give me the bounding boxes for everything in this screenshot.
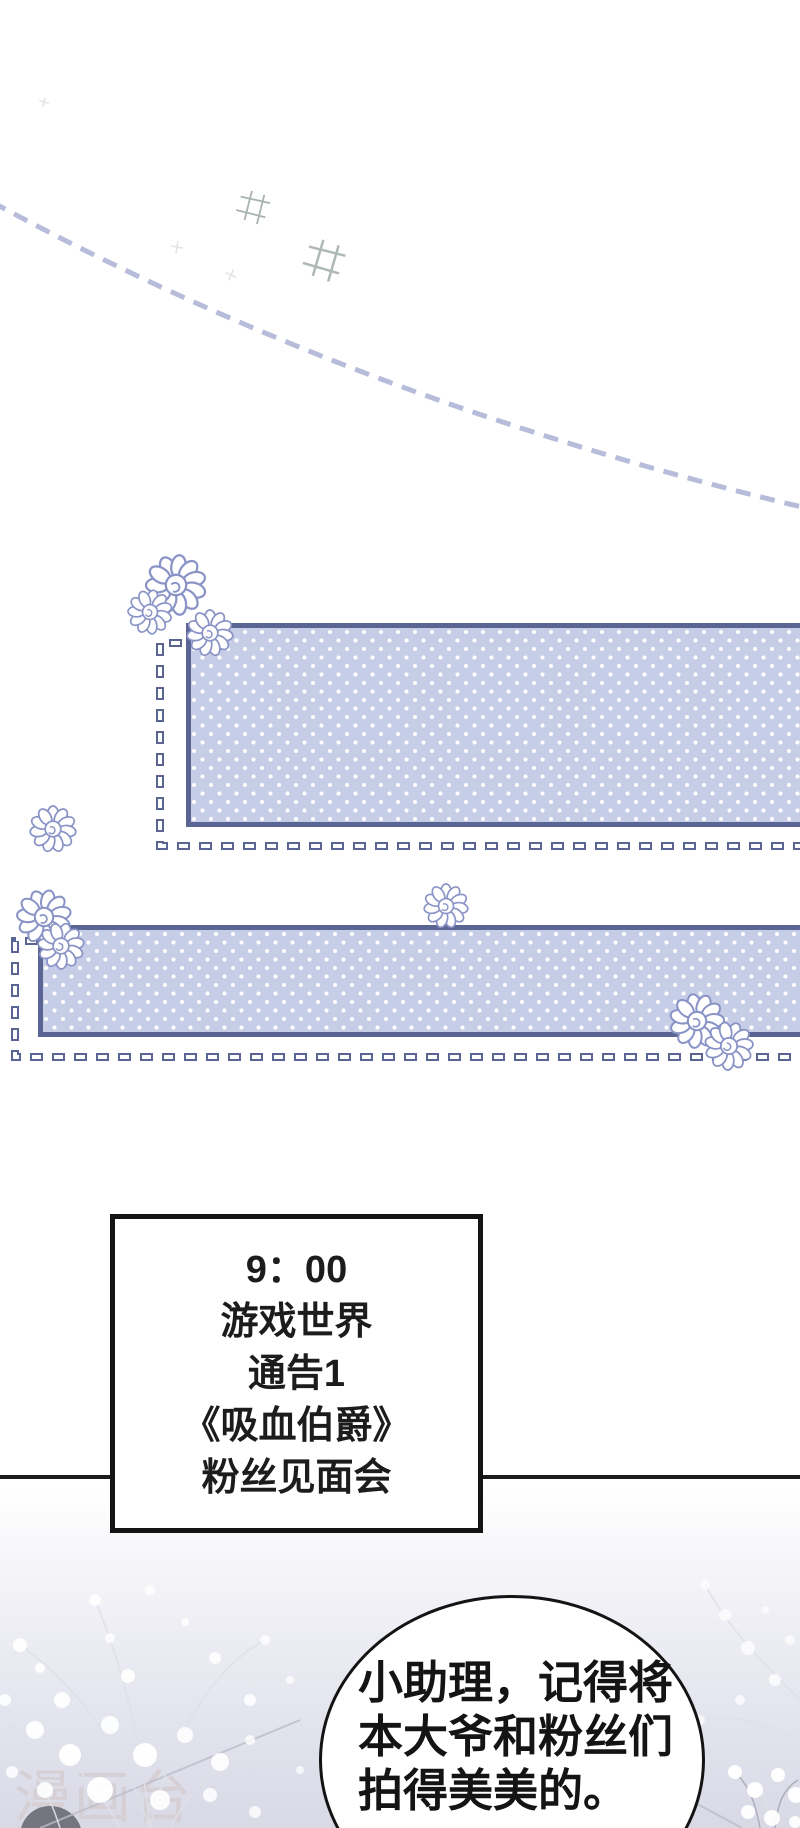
daisy-icon	[29, 806, 76, 853]
notice-line-event: 粉丝见面会	[201, 1452, 391, 1504]
bubble-line-2: 本大爷和粉丝们	[358, 1710, 673, 1764]
comic-page: 漫画台	[0, 0, 800, 1828]
bubble-line-3: 拍得美美的。	[358, 1764, 673, 1818]
polka-dot-banner-top	[186, 623, 800, 827]
notice-line-number: 通告1	[248, 1348, 345, 1400]
notice-board: 9：00 游戏世界 通告1 《吸血伯爵》 粉丝见面会	[110, 1214, 483, 1533]
notice-line-world: 游戏世界	[220, 1296, 372, 1348]
hash-sparkle-icon	[300, 236, 348, 284]
daisy-icon	[423, 884, 468, 929]
notice-line-time: 9：00	[246, 1244, 347, 1296]
polka-dot-banner-bottom	[38, 925, 800, 1037]
bubble-line-1: 小助理，记得将	[358, 1656, 673, 1710]
daisy-icon	[124, 586, 176, 638]
dashed-curve	[0, 202, 800, 508]
speech-bubble-text: 小助理，记得将 本大爷和粉丝们 拍得美美的。	[358, 1656, 673, 1818]
daisy-icon	[135, 545, 216, 626]
faint-sparkle-icon	[38, 96, 239, 283]
hash-sparkle-icon	[234, 188, 272, 226]
notice-line-title: 《吸血伯爵》	[182, 1400, 410, 1452]
